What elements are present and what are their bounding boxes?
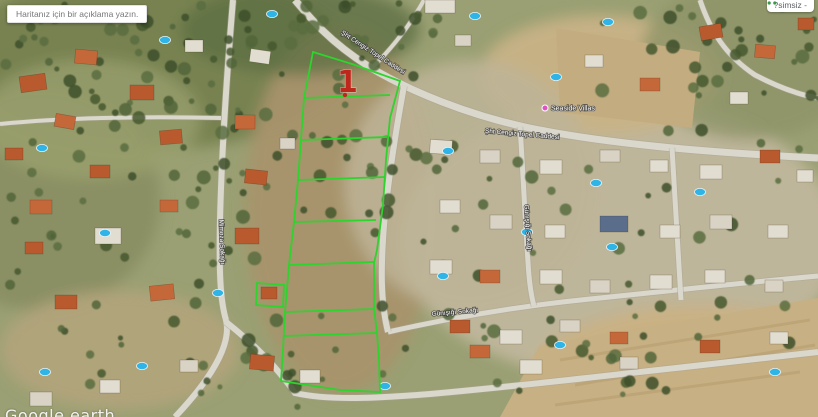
google-earth-watermark: Google earth: [5, 406, 115, 417]
parcel-divider[interactable]: [301, 137, 387, 140]
road-label: Günışığı Sokağı: [522, 204, 532, 251]
road-label: Şht Cengiz Topel Caddesi: [485, 128, 560, 141]
poi-marker[interactable]: [542, 105, 548, 111]
poi-label: Seaside Villas: [551, 106, 595, 113]
placemark-1[interactable]: 1: [337, 65, 358, 100]
road-label: Günışığı Sokağı: [431, 307, 478, 318]
map-viewport[interactable]: Şht Cengiz Topel CaddesiŞht Cengiz Topel…: [0, 0, 818, 417]
parcel-divider[interactable]: [285, 309, 374, 312]
map-title-button[interactable]: ?simsiz -: [767, 0, 814, 12]
map-description-placeholder: Haritanız için bir açıklama yazın.: [16, 9, 138, 19]
group-icon: [767, 0, 777, 6]
small-parcel-outline[interactable]: [256, 283, 284, 307]
parcel-divider[interactable]: [294, 220, 376, 222]
parcel-divider[interactable]: [289, 262, 374, 265]
map-title-label: ?simsiz -: [773, 0, 807, 10]
map-annotations: Şht Cengiz Topel CaddesiŞht Cengiz Topel…: [0, 0, 818, 417]
parcel-divider[interactable]: [298, 177, 385, 180]
map-description-input[interactable]: Haritanız için bir açıklama yazın.: [7, 5, 147, 23]
road-label: Mimoza Sokağı: [217, 219, 226, 264]
parcel-divider[interactable]: [283, 333, 376, 336]
